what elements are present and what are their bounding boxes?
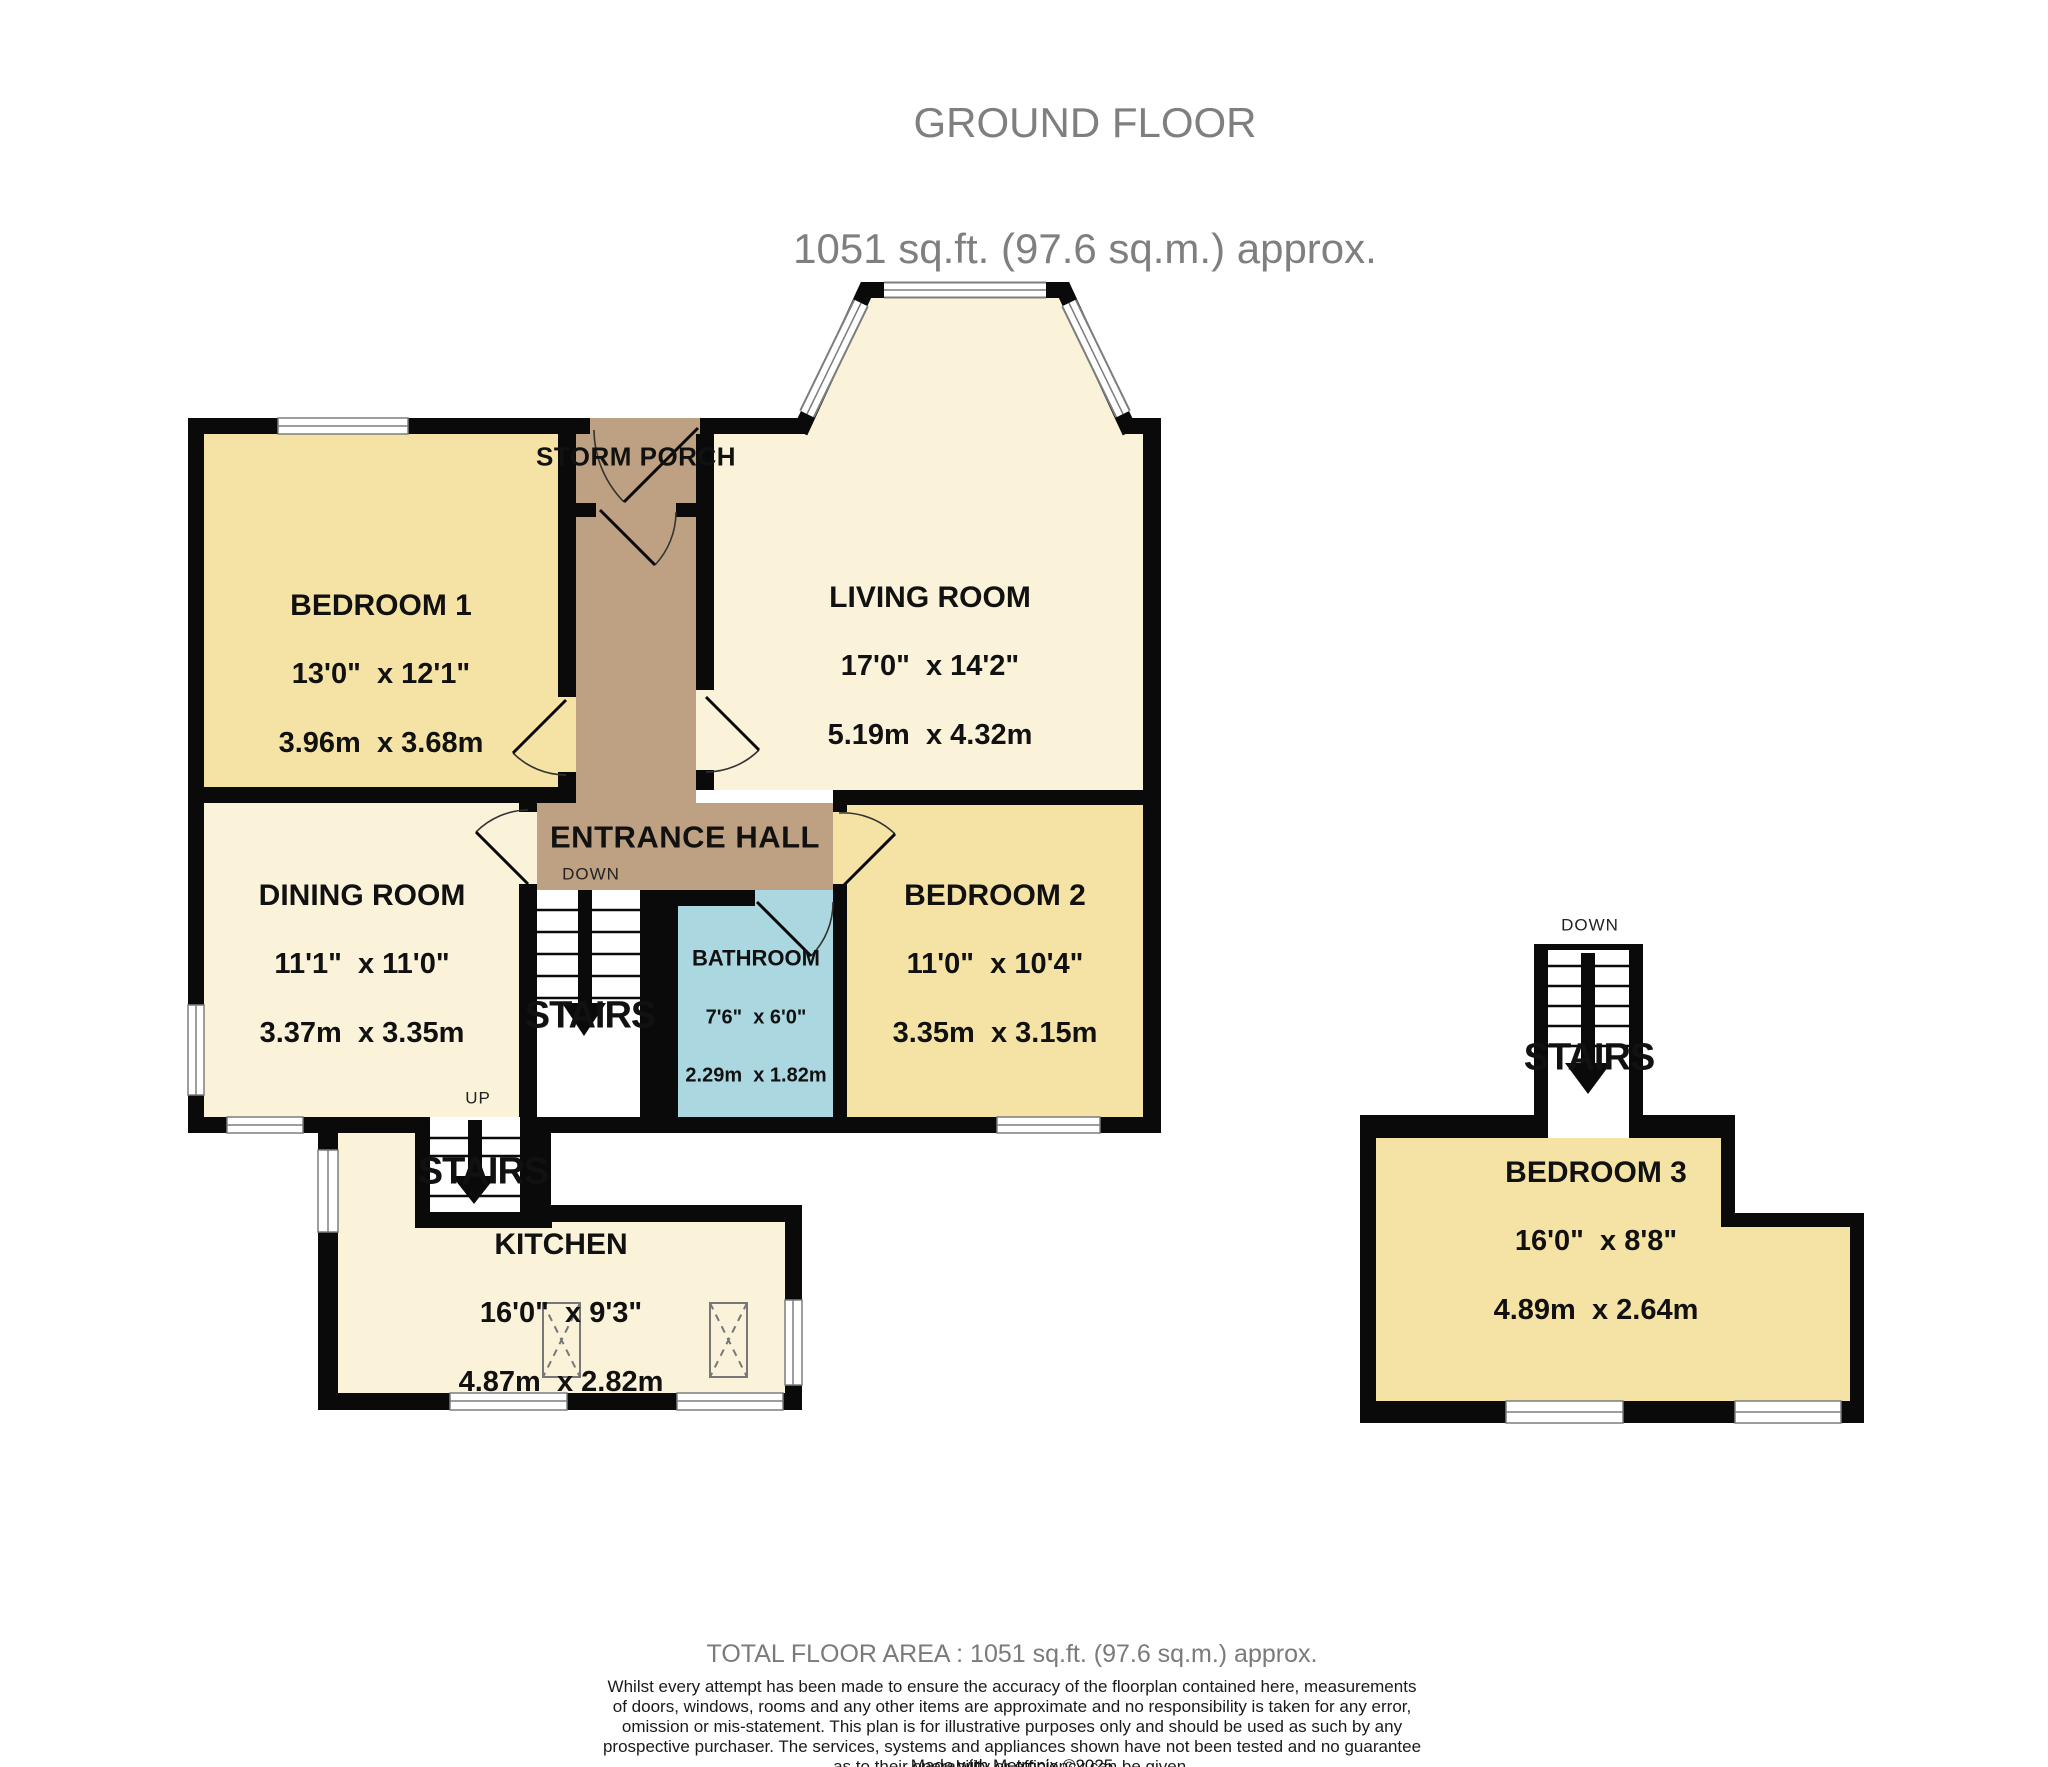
storm-porch-label: STORM PORCH (536, 442, 736, 471)
kitchen-stairs-up-label: UP (465, 1088, 491, 1107)
bedroom3-stairs-label: STAIRS (1524, 1037, 1655, 1080)
total-floor-area: TOTAL FLOOR AREA : 1051 sq.ft. (97.6 sq.… (707, 1640, 1318, 1669)
kitchen-stairs-label: STAIRS (418, 1151, 549, 1194)
bedroom3-label: BEDROOM 3 16'0" x 8'8" 4.89m x 2.64m (1494, 1120, 1699, 1362)
window (997, 1117, 1100, 1133)
disclaimer-line: Whilst every attempt has been made to en… (608, 1677, 1417, 1697)
window (785, 1300, 802, 1385)
kitchen-label: KITCHEN 16'0" x 9'3" 4.87m x 2.82m (459, 1192, 664, 1434)
bedroom1-label: BEDROOM 1 13'0" x 12'1" 3.96m x 3.68m (279, 553, 484, 795)
bedroom3-stairs-down-label: DOWN (1561, 915, 1619, 934)
disclaimer-line: of doors, windows, rooms and any other i… (613, 1697, 1411, 1717)
window (188, 1005, 204, 1095)
hall-down-label: DOWN (562, 864, 620, 883)
bedroom2-label: BEDROOM 2 11'0" x 10'4" 3.35m x 3.15m (893, 843, 1098, 1085)
floorplan-page: GROUND FLOOR 1051 sq.ft. (97.6 sq.m.) ap… (0, 0, 2048, 1767)
window (1506, 1401, 1623, 1423)
living-room-label: LIVING ROOM 17'0" x 14'2" 5.19m x 4.32m (828, 545, 1033, 787)
metropix-credit: Made with Metropix ©2025 (911, 1756, 1113, 1767)
entrance-hall-label: ENTRANCE HALL (550, 821, 820, 856)
disclaimer-line: prospective purchaser. The services, sys… (603, 1737, 1421, 1757)
dining-room-label: DINING ROOM 11'1" x 11'0" 3.37m x 3.35m (259, 843, 466, 1085)
main-stairs-label: STAIRS (525, 995, 656, 1038)
window (1735, 1401, 1841, 1423)
bathroom-label: BATHROOM 7'6" x 6'0" 2.29m x 1.82m (685, 911, 826, 1124)
window (227, 1117, 303, 1133)
disclaimer-line: omission or mis-statement. This plan is … (622, 1717, 1402, 1737)
window (677, 1393, 783, 1410)
window (318, 1150, 338, 1232)
window (278, 418, 408, 434)
